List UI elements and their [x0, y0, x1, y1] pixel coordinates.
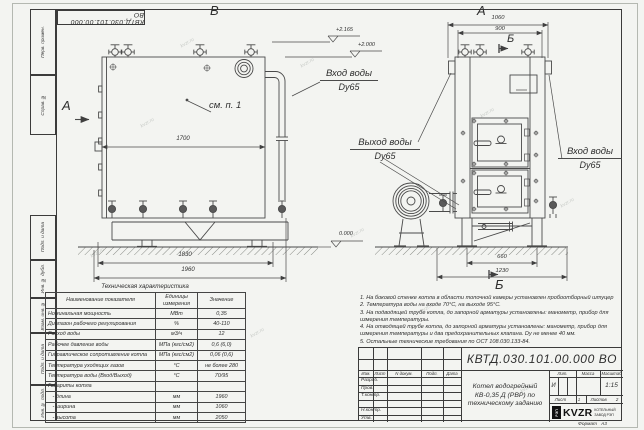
spec-cell-name: - длина — [46, 392, 156, 402]
side-view-linework — [78, 45, 318, 255]
spec-cell-units: мм — [156, 402, 198, 412]
label-water-outlet-line2: Dy65 — [350, 150, 420, 161]
note-line: 2. Температура воды на входе 70°С, на вы… — [360, 302, 619, 309]
label-water-inlet-right: Вход воды Dy65 — [558, 146, 622, 170]
kvzr-sub-line1: КОТЕЛЬНЫЙ — [594, 408, 615, 412]
section-label-b-bottom: Б — [495, 278, 503, 292]
drawing-sheet: Перв. примен. Справ. № Подп. и дата Инв.… — [0, 0, 644, 430]
note-line: 1. На боковой стенке котла в области топ… — [360, 295, 619, 302]
spec-table-body: Номинальная мощность МВт 0,35 Диапазон р… — [46, 309, 246, 423]
table-row: - ширина мм 1060 — [46, 402, 246, 412]
lit-label: Лит. — [549, 370, 576, 377]
sheet-cell: Лист 1 — [549, 395, 586, 403]
spec-header-value: Значение — [198, 293, 246, 309]
spec-cell-name: - высота — [46, 412, 156, 422]
sheets-cell: Листов 2 — [586, 395, 623, 403]
note-reference-label: см. п. 1 — [209, 101, 241, 111]
dim-1960: 1960 — [168, 267, 208, 273]
spec-cell-units: % — [156, 319, 198, 329]
kvzr-logo-vert-text: РЭП — [555, 409, 559, 417]
spec-cell-value: 40-110 — [198, 319, 246, 329]
table-row: - высота мм 2050 — [46, 412, 246, 422]
label-water-inlet-right-line1: Вход воды — [558, 146, 622, 159]
sheet-label: Лист — [555, 397, 566, 402]
spec-cell-name: Гидравлическое сопротивление котла — [46, 350, 156, 360]
title-block-header-columns: Изм. Лист N докум. Подп. Дата — [359, 370, 461, 377]
spec-cell-name: Рабочее давление воды — [46, 340, 156, 350]
doc-name-line1: Котел водогрейный — [461, 383, 549, 392]
note-line: 4. На отводящей трубе котла, до запорной… — [360, 324, 619, 338]
section-label-b-top: Б — [507, 34, 514, 46]
col-data: Дата — [443, 370, 461, 377]
dim-1830: 1830 — [165, 252, 205, 258]
elevation-0000: 0.000 — [339, 232, 353, 238]
dim-900: 900 — [483, 26, 517, 32]
title-block-doc-name: Котел водогрейный КВ-0,35 Д (РВР) по тех… — [461, 370, 549, 422]
spec-cell-value: 0,35 — [198, 309, 246, 319]
signature-row-label: Утв. — [359, 415, 461, 423]
spec-cell-name: Расход воды — [46, 329, 156, 339]
table-row: Габариты котла — [46, 381, 246, 391]
spec-header-name: Наименование показателя — [46, 293, 156, 309]
title-block-designation: КВТД.030.101.00.000 ВО — [461, 348, 623, 370]
spec-cell-value: 12 — [198, 329, 246, 339]
spec-cell-units: °С — [156, 371, 198, 381]
format-corner: Формат А3 — [578, 422, 607, 427]
spec-table: Наименование показателя Единицы измерени… — [45, 292, 246, 423]
signature-row-label: Т.контр. — [359, 392, 461, 400]
title-block-signature-rows: Разраб.Пров.Т.контр. Н.контр.Утв. — [359, 377, 461, 422]
table-row: Температура воды (Вход/Выход) °С 70/95 — [46, 371, 246, 381]
spec-cell-units: м3/ч — [156, 329, 198, 339]
kvzr-logo-subtitle: КОТЕЛЬНЫЙ ЗАВОД РЭП — [594, 408, 615, 416]
label-water-inlet-top-line1: Вход воды — [320, 68, 378, 81]
sheet-value: 1 — [578, 397, 580, 402]
spec-cell-value: 2050 — [198, 412, 246, 422]
format-label: Формат — [578, 422, 597, 427]
scale-label: Масштаб — [600, 370, 623, 377]
spec-table-header-row: Наименование показателя Единицы измерени… — [46, 293, 246, 309]
spec-cell-name: Температура воды (Вход/Выход) — [46, 371, 156, 381]
technical-notes: 1. На боковой стенке котла в области топ… — [360, 295, 619, 346]
dim-1060: 1060 — [480, 15, 516, 21]
scale-value: 1:15 — [600, 377, 623, 395]
table-row: Температура уходящих газов °С не более 2… — [46, 360, 246, 370]
spec-cell-units: мм — [156, 412, 198, 422]
spec-table-title: Техническая характеристика — [45, 283, 245, 290]
dim-1230: 1230 — [481, 268, 523, 274]
table-row: Рабочее давление воды МПа (кгс/см2) 0,6 … — [46, 340, 246, 350]
label-water-outlet-line1: Выход воды — [350, 137, 420, 150]
col-podp: Подп. — [421, 370, 443, 377]
title-block: КВТД.030.101.00.000 ВО Изм. Лист N докум… — [358, 347, 622, 421]
kvzr-logo-mark: РЭП — [552, 406, 561, 419]
col-izm: Изм. — [359, 370, 373, 377]
spec-cell-value: 1960 — [198, 392, 246, 402]
sheets-value: 2 — [616, 397, 618, 402]
spec-cell-name: - ширина — [46, 402, 156, 412]
spec-cell-units: мм — [156, 392, 198, 402]
note-line: 5. Остальные технические требования по О… — [360, 339, 619, 346]
spec-cell-value: 0,6 (6,0) — [198, 340, 246, 350]
spec-cell-value: 70/95 — [198, 371, 246, 381]
sheets-label: Листов — [591, 397, 607, 402]
table-row: Гидравлическое сопротивление котла МПа (… — [46, 350, 246, 360]
label-water-inlet-right-line2: Dy65 — [558, 159, 622, 170]
spec-cell-name: Номинальная мощность — [46, 309, 156, 319]
signature-row-label — [359, 400, 461, 408]
signature-row-label: Н.контр. — [359, 407, 461, 415]
label-water-outlet: Выход воды Dy65 — [350, 137, 420, 161]
spec-cell-value: 1060 — [198, 402, 246, 412]
signature-row-label: Пров. — [359, 385, 461, 393]
format-value: А3 — [601, 422, 607, 427]
doc-name-line3: техническому заданию — [461, 400, 549, 409]
spec-cell-units: МВт — [156, 309, 198, 319]
lit-value: И — [549, 377, 558, 395]
col-ndokum: N докум. — [387, 370, 421, 377]
signature-row-label: Разраб. — [359, 377, 461, 385]
dim-1700: 1700 — [163, 136, 203, 142]
elevation-2165: +2.165 — [336, 28, 353, 34]
spec-cell-name: Температура уходящих газов — [46, 360, 156, 370]
kvzr-logo: РЭП KVZR КОТЕЛЬНЫЙ ЗАВОД РЭП — [549, 403, 623, 422]
table-row: Диапазон рабочего регулирования % 40-110 — [46, 319, 246, 329]
table-row: Номинальная мощность МВт 0,35 — [46, 309, 246, 319]
table-row: - длина мм 1960 — [46, 392, 246, 402]
spec-cell-name: Габариты котла — [46, 381, 156, 391]
spec-cell-units: МПа (кгс/см2) — [156, 350, 198, 360]
dim-660: 660 — [485, 254, 519, 260]
spec-cell-units: МПа (кгс/см2) — [156, 340, 198, 350]
spec-header-units: Единицы измерения — [156, 293, 198, 309]
table-row: Расход воды м3/ч 12 — [46, 329, 246, 339]
label-water-inlet-top: Вход воды Dy65 — [320, 68, 378, 92]
spec-cell-units: °С — [156, 360, 198, 370]
spec-cell-value: 0,06 (0,6) — [198, 350, 246, 360]
spec-cell-value: не более 280 — [198, 360, 246, 370]
kvzr-sub-line2: ЗАВОД РЭП — [594, 413, 615, 417]
kvzr-logo-text: KVZR — [563, 407, 592, 419]
view-label-v: В — [210, 4, 219, 18]
section-label-a: А — [62, 99, 71, 113]
note-line: 3. На подводящей трубе котла, до запорно… — [360, 310, 619, 324]
spec-cell-value — [198, 381, 246, 391]
label-water-inlet-top-line2: Dy65 — [320, 81, 378, 92]
spec-cell-units — [156, 381, 198, 391]
col-list: Лист — [373, 370, 387, 377]
elevation-2000: +2.000 — [358, 43, 375, 49]
mass-label: Масса — [576, 370, 600, 377]
spec-cell-name: Диапазон рабочего регулирования — [46, 319, 156, 329]
